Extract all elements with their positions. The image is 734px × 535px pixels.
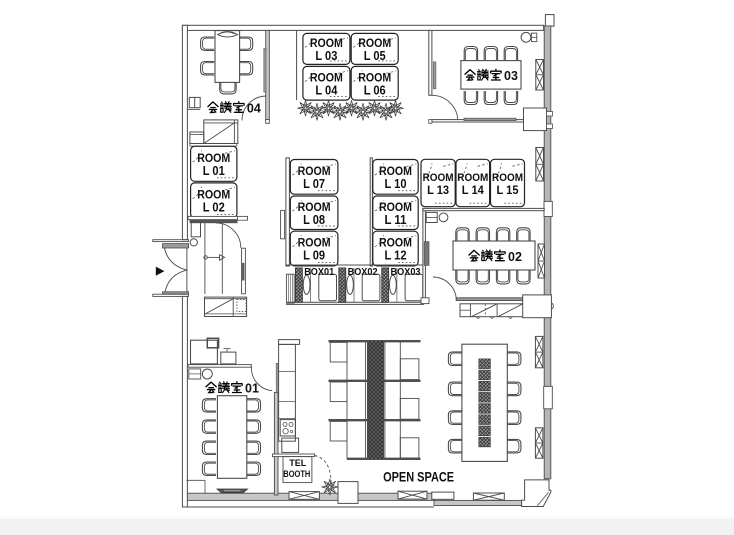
svg-text:BOX03: BOX03 — [391, 267, 422, 278]
svg-text:L 12: L 12 — [385, 248, 407, 263]
svg-text:L 14: L 14 — [462, 183, 484, 197]
svg-text:BOX02: BOX02 — [348, 267, 379, 278]
svg-text:03: 03 — [504, 69, 518, 83]
svg-text:L 01: L 01 — [203, 163, 225, 178]
svg-text:L 08: L 08 — [303, 212, 325, 227]
svg-text:L 02: L 02 — [203, 199, 225, 214]
svg-text:BOX01: BOX01 — [304, 267, 335, 278]
svg-text:L 07: L 07 — [303, 176, 325, 191]
svg-text:01: 01 — [245, 382, 259, 396]
svg-text:L 09: L 09 — [303, 248, 325, 263]
svg-text:TEL: TEL — [289, 458, 306, 469]
svg-text:L 15: L 15 — [497, 183, 519, 197]
svg-text:BOOTH: BOOTH — [283, 469, 310, 480]
svg-text:L 10: L 10 — [385, 176, 407, 191]
svg-text:L 13: L 13 — [427, 183, 449, 197]
svg-text:04: 04 — [247, 101, 261, 115]
svg-text:02: 02 — [508, 250, 522, 264]
svg-text:L 06: L 06 — [364, 82, 386, 97]
svg-text:L 11: L 11 — [385, 212, 407, 227]
svg-text:L 04: L 04 — [315, 82, 338, 97]
svg-text:OPEN SPACE: OPEN SPACE — [383, 470, 454, 486]
